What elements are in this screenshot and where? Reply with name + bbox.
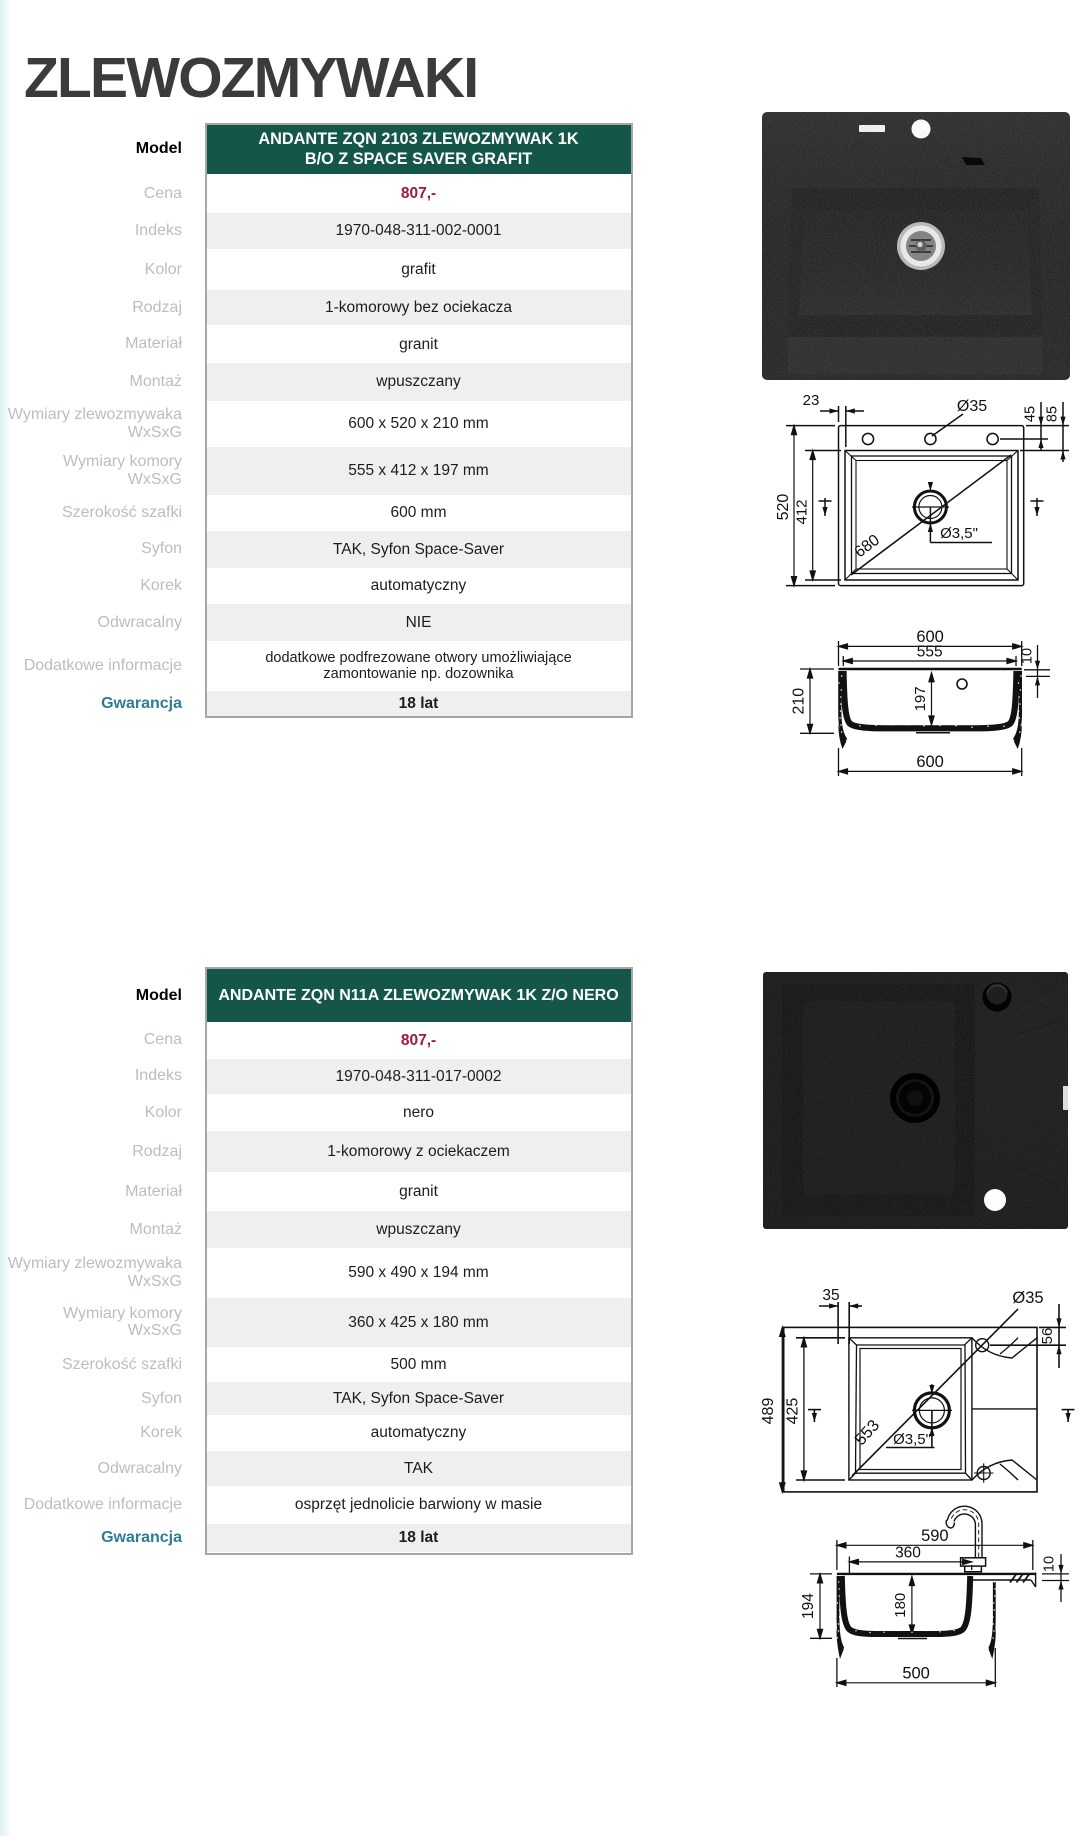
svg-text:Ø35: Ø35	[957, 398, 987, 415]
svg-text:590: 590	[921, 1527, 949, 1545]
svg-text:Ø3,5": Ø3,5"	[940, 525, 978, 542]
svg-text:10: 10	[1042, 1556, 1058, 1572]
svg-text:Ø3,5": Ø3,5"	[893, 1431, 931, 1448]
svg-text:Ø35: Ø35	[1012, 1289, 1043, 1307]
svg-text:10: 10	[1020, 648, 1036, 664]
svg-text:520: 520	[775, 494, 792, 521]
svg-text:194: 194	[800, 1593, 817, 1619]
svg-text:85: 85	[1045, 406, 1061, 422]
svg-text:197: 197	[912, 686, 929, 711]
svg-text:180: 180	[892, 1593, 909, 1618]
svg-text:35: 35	[822, 1287, 839, 1304]
svg-text:555: 555	[917, 644, 943, 661]
svg-text:425: 425	[785, 1398, 802, 1425]
svg-text:23: 23	[803, 392, 820, 409]
svg-text:489: 489	[760, 1398, 777, 1425]
svg-text:210: 210	[791, 688, 808, 715]
svg-text:412: 412	[794, 499, 811, 524]
svg-text:600: 600	[916, 753, 944, 771]
svg-text:45: 45	[1023, 406, 1039, 422]
svg-text:500: 500	[902, 1664, 930, 1682]
svg-text:56: 56	[1039, 1328, 1056, 1345]
svg-text:360: 360	[895, 1544, 921, 1561]
